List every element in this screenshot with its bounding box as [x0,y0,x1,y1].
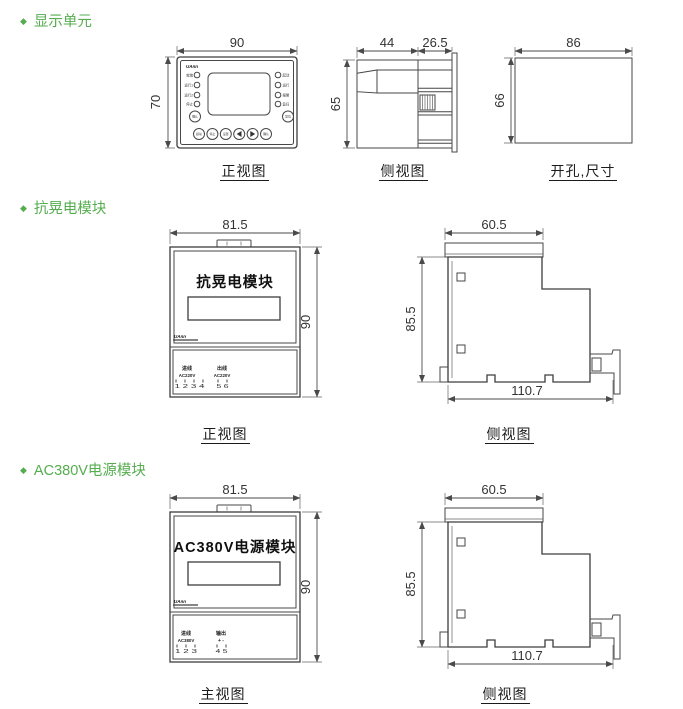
dimension-rear-depth: 26.5 [418,35,452,51]
button-label: 设置 [223,131,229,136]
left-led-group: 就绪 运行1 运行2 停止 [184,72,199,107]
plug-taper [357,70,377,93]
dim-height-value: 65 [328,97,343,111]
rear-plug [377,70,418,93]
side-buttons: 确认 复位 [190,111,294,122]
terminal-out-pins: 5 6 [217,384,229,390]
left-arrow-icon [237,131,242,137]
led-label: 就绪 [186,72,193,77]
side-profile-drawing [357,53,457,152]
side-profile-drawing [440,508,620,659]
figure-sag-module-front-view: 81.5 90 抗晃电模块 UAnn 进线 AC220V 1 2 3 4 [146,210,336,420]
dim-width-value: 86 [566,35,580,50]
dim-rear-depth-value: 26.5 [422,35,447,50]
dim-height-value: 66 [492,93,507,107]
panel-flange [452,53,457,152]
terminal-in-label: 进线 [181,630,191,637]
section-title-text: AC380V电源模块 [34,463,146,479]
brand-logo: UAnn [174,334,186,339]
section-title-text: 抗晃电模块 [34,201,107,217]
screw-hole [457,273,465,281]
section-title-sag-module: ◆抗晃电模块 [20,197,106,218]
diamond-bullet-icon: ◆ [20,203,27,213]
section-title-display-unit: ◆显示单元 [20,10,92,31]
dim-top-width-value: 60.5 [481,482,506,497]
dim-width-value: 81.5 [222,482,247,497]
bottom-foot [440,632,448,647]
caption-sag-front: 正视图 [177,424,273,444]
led-label: 运行 [283,82,290,87]
figure-power-module-side-view: 60.5 85.5 110.7 [402,475,665,685]
caption-power-side: 侧视图 [457,684,553,704]
led-label: 复归 [283,101,290,106]
screw-hole [457,610,465,618]
dim-height-value: 85.5 [403,571,418,596]
dimension-bottom-width: 110.7 [448,380,613,404]
dimension-height: 65 [328,60,355,148]
screw-hole [457,538,465,546]
button-label: 停止 [210,131,216,136]
button-label: 复位 [285,114,291,119]
bottom-button-row: 起动 停止 设置 确认 [194,129,272,140]
dimension-height: 90 [298,247,322,397]
dim-bottom-width-value: 110.7 [511,648,543,663]
dimension-front-depth: 44 [357,35,418,58]
brand-logo: UAnn [186,64,198,69]
terminal-block-out: 出线 AC220V 5 6 [214,365,231,390]
dimension-width: 86 [515,35,632,56]
dimension-height: 90 [298,512,322,662]
diamond-bullet-icon: ◆ [20,465,27,475]
terminal-block-in: 进线 AC220V 1 2 3 4 [175,365,205,390]
dim-front-depth-value: 44 [380,35,394,50]
cutout-rectangle [515,58,632,143]
led-label: 起动 [283,72,290,77]
figure-sag-module-side-view: 60.5 85.5 110.7 [402,210,665,420]
module-body [448,522,590,647]
caption-sag-side: 侧视图 [461,424,557,444]
terminal-in-voltage: AC220V [179,373,196,378]
module-front-drawing: 抗晃电模块 UAnn 进线 AC220V 1 2 3 4 出线 AC220V 5… [170,240,300,397]
button-label: 起动 [196,131,202,136]
terminal-out-label: 出线 [217,365,227,372]
dimension-height: 85.5 [403,257,446,382]
face-window [188,562,280,585]
led-label: 运行1 [184,82,193,87]
right-led-group: 起动 运行 报警 复归 [275,72,290,107]
dimension-width: 90 [177,35,297,55]
button-label: 确认 [263,131,269,136]
terminal-block-in: 进线 AC380V 1 2 3 [175,630,197,655]
dimension-height: 70 [148,57,175,148]
dimension-top-width: 60.5 [445,217,543,240]
diamond-bullet-icon: ◆ [20,16,27,26]
top-clip [217,240,251,247]
caption-cutout: 开孔,尺寸 [535,161,631,181]
dim-top-width-value: 60.5 [481,217,506,232]
din-rail-clip [590,350,620,394]
terminal-in-pins: 1 2 3 [175,649,197,655]
lcd-screen [208,73,270,115]
brand-logo: UAnn [174,599,186,604]
connector-hatch [420,95,435,110]
display-panel: UAnn 就绪 运行1 运行2 停止 起动 运行 报警 复归 确认 [177,57,297,148]
caption-power-front: 主视图 [175,684,271,704]
dim-width-value: 90 [230,35,244,50]
dim-height-value: 85.5 [403,306,418,331]
face-label: AC380V电源模块 [174,538,297,556]
bottom-foot [440,367,448,382]
top-cap [445,508,543,522]
screw-hole [457,345,465,353]
section-title-text: 显示单元 [34,14,92,30]
caption-display-side: 侧视图 [355,161,451,181]
top-cap [445,243,543,257]
din-rail-clip [590,615,620,659]
led-label: 运行2 [184,92,193,97]
caption-display-front: 正视图 [196,161,292,181]
module-front-drawing: AC380V电源模块 UAnn 进线 AC380V 1 2 3 输出 + - 4… [170,505,300,662]
page: ◆显示单元 ◆抗晃电模块 ◆AC380V电源模块 90 70 UAnn 就绪 [0,0,683,709]
dim-bottom-width-value: 110.7 [511,383,543,398]
dim-height-value: 70 [148,95,163,109]
terminal-in-label: 进线 [182,365,192,372]
dimension-height: 66 [492,58,513,143]
face-window [188,297,280,320]
terminal-out-voltage: AC220V [214,373,231,378]
right-arrow-icon [250,131,255,137]
side-profile-drawing [440,243,620,394]
led-label: 停止 [186,101,193,106]
dim-width-value: 81.5 [222,217,247,232]
top-clip [217,505,251,512]
dimension-bottom-width: 110.7 [448,645,613,669]
button-label: 确认 [192,114,198,119]
dimension-top-width: 60.5 [445,482,543,505]
figure-power-module-front-view: 81.5 90 AC380V电源模块 UAnn 进线 AC380V 1 2 3 [146,475,336,685]
face-label: 抗晃电模块 [196,273,274,291]
terminal-in-pins: 1 2 3 4 [175,384,205,390]
terminal-out-voltage: + - [218,638,224,644]
dimension-height: 85.5 [403,522,446,647]
led-label: 报警 [283,92,290,97]
terminal-in-voltage: AC380V [178,638,195,643]
terminal-out-label: 输出 [216,630,226,637]
section-title-power-module: ◆AC380V电源模块 [20,459,146,480]
terminal-out-pins: 4 5 [216,649,228,655]
terminal-block-out: 输出 + - 4 5 [216,630,228,655]
module-body [448,257,590,382]
